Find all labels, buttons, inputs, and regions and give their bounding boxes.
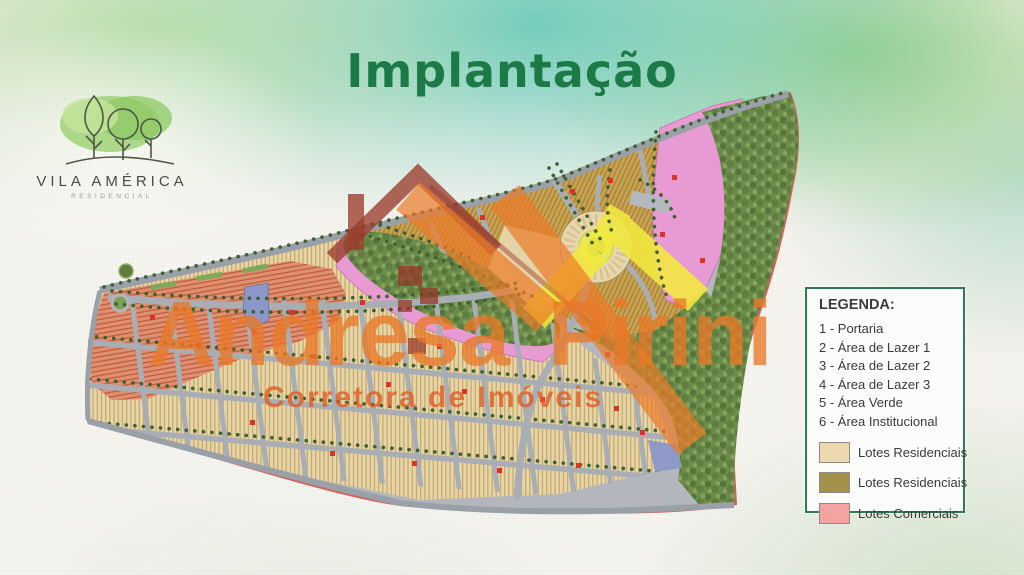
legend-row-residencial-olive: Lotes Residenciais: [819, 472, 959, 493]
logo-vila-america: VILA AMÉRICA RESIDENCIAL: [22, 86, 202, 200]
map-mini-roundabout: [112, 295, 128, 311]
page-title: Implantação: [346, 44, 677, 98]
swatch-comerciais: [819, 503, 850, 524]
legend-item-lazer-3: 4 - Área de Lazer 3: [819, 376, 959, 395]
legend-row-comerciais: Lotes Comerciais: [819, 503, 959, 524]
legend-title: LEGENDA:: [819, 297, 959, 313]
legend-list: 1 - Portaria 2 - Área de Lazer 1 3 - Áre…: [819, 320, 959, 432]
legend-item-lazer-1: 2 - Área de Lazer 1: [819, 339, 959, 358]
slide-implantacao: Implantação VILA AMÉRICA RESIDENCIAL: [0, 0, 1024, 575]
legend-item-lazer-2: 3 - Área de Lazer 2: [819, 357, 959, 376]
legend-item-area-verde: 5 - Área Verde: [819, 394, 959, 413]
legend-swatches: Lotes Residenciais Lotes Residenciais Lo…: [819, 442, 959, 524]
map-park-circle: [119, 264, 133, 278]
logo-name: VILA AMÉRICA: [22, 173, 202, 190]
legend-box: LEGENDA: 1 - Portaria 2 - Área de Lazer …: [805, 287, 965, 513]
legend-item-institucional: 6 - Área Institucional: [819, 413, 959, 432]
swatch-residencial-tan: [819, 442, 850, 463]
logo-trees-icon: [22, 86, 202, 166]
swatch-residencial-olive: [819, 472, 850, 493]
legend-row-residencial-tan: Lotes Residenciais: [819, 442, 959, 463]
legend-item-portaria: 1 - Portaria: [819, 320, 959, 339]
logo-subtitle: RESIDENCIAL: [22, 193, 202, 200]
